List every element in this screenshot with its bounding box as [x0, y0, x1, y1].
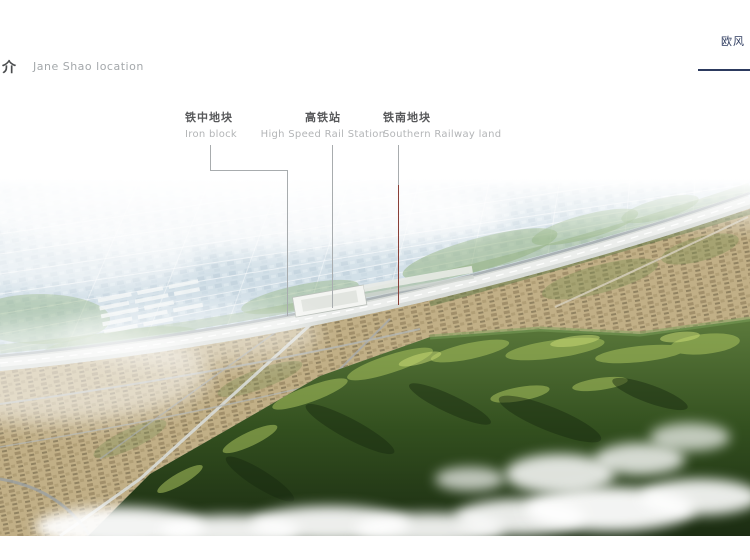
- aerial-scene-svg: [0, 179, 750, 536]
- annotation-southern-railway-zh: 铁南地块: [383, 109, 501, 125]
- logo-underline: [698, 69, 750, 71]
- page-title-zh: 简介: [0, 57, 18, 77]
- annotation-hsr-station-zh: 高铁站: [252, 109, 394, 125]
- masterplan-aerial-rendering: [0, 179, 750, 536]
- annotation-iron-block-zh: 铁中地块: [185, 109, 237, 125]
- leader-line-iron-block-v2: [287, 170, 288, 316]
- annotation-hsr-station: 高铁站 High Speed Rail Station: [252, 109, 394, 140]
- brand-logo: 欧风 Landsc: [693, 30, 750, 49]
- annotation-hsr-station-en: High Speed Rail Station: [252, 129, 394, 140]
- annotation-iron-block: 铁中地块 Iron block: [185, 109, 237, 140]
- slide-page: 简介 Jane Shao location 欧风 Landsc 铁中地块 Iro…: [0, 0, 750, 560]
- leader-line-iron-block-h: [210, 170, 288, 171]
- leader-line-iron-block-v1: [210, 145, 211, 170]
- annotation-iron-block-en: Iron block: [185, 129, 237, 140]
- leader-line-hsr-station: [332, 145, 333, 308]
- brand-logo-zh: 欧风: [693, 35, 745, 48]
- leader-line-southern-railway-bottom: [398, 185, 399, 305]
- annotation-southern-railway: 铁南地块 Southern Railway land: [383, 109, 501, 140]
- page-subtitle-en: Jane Shao location: [33, 60, 144, 73]
- leader-line-southern-railway-top: [398, 145, 399, 185]
- annotation-southern-railway-en: Southern Railway land: [383, 129, 501, 140]
